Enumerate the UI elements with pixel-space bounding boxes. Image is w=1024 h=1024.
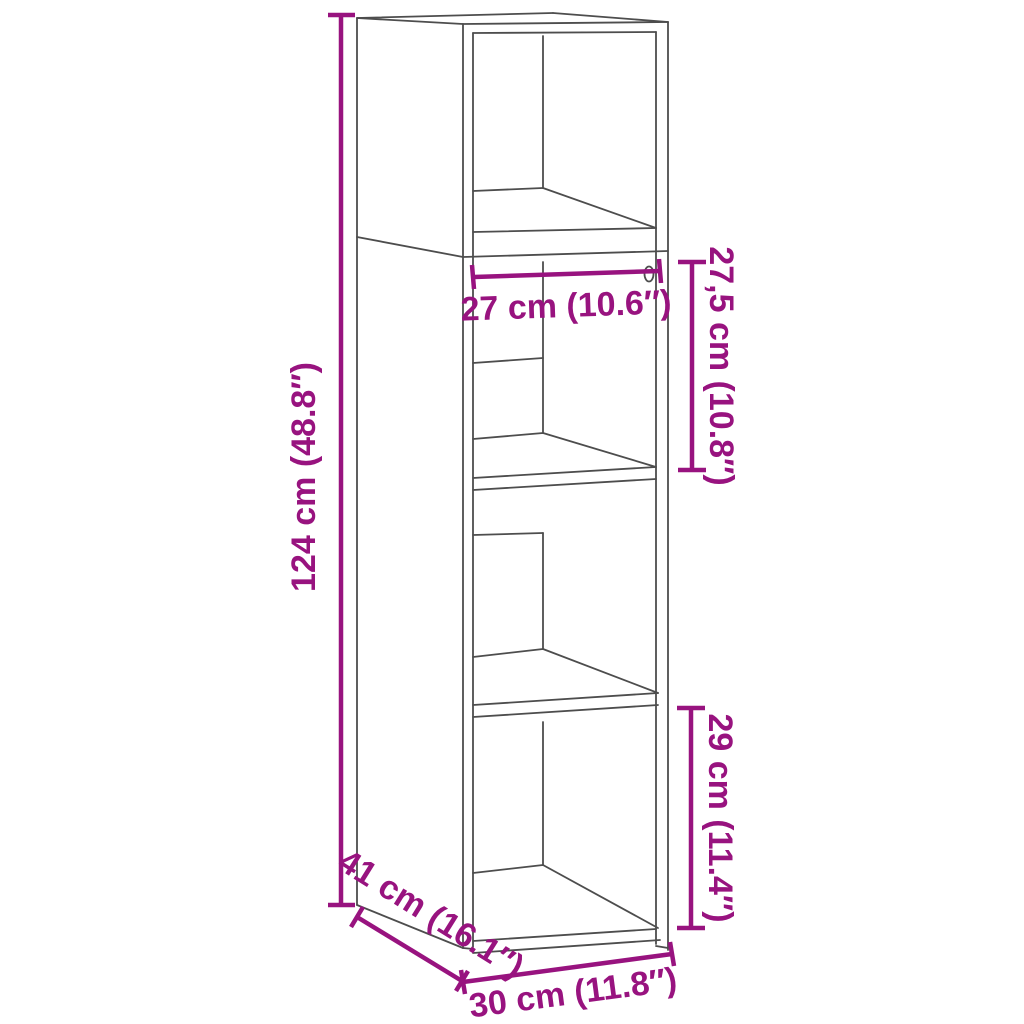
lower-shelf-height-dimension — [677, 708, 705, 928]
cabinet-edge-back-top — [357, 13, 553, 18]
shelf2-front-top-edge — [473, 467, 656, 478]
stile-right-bottom-cap — [656, 946, 668, 948]
upper-shelf-height-label: 27,5 cm (10.8″) — [702, 246, 740, 485]
lower-shelf-height-label: 29 cm (11.4″) — [701, 713, 739, 922]
shelf3-receding-edge — [543, 649, 658, 693]
comp2-back-seam — [473, 358, 543, 363]
cam-hole-icon — [645, 267, 654, 282]
total-height-label: 124 cm (48.8″) — [285, 362, 323, 592]
cabinet-edge-opening-top — [473, 32, 656, 33]
topbox-side-bottom-edge — [357, 237, 463, 257]
total-height-dimension — [328, 15, 355, 905]
diagram-canvas: 124 cm (48.8″) 27 cm (10.6″) 27,5 cm (10… — [0, 0, 1024, 1024]
upper-shelf-height-dimension — [678, 262, 706, 470]
dimension-lines — [328, 15, 706, 994]
shelf3-back-edge — [473, 649, 543, 657]
shelf3-front-bottom-edge — [473, 705, 658, 717]
dim-line — [474, 271, 660, 277]
floor-receding-edge — [543, 865, 658, 928]
dimension-labels: 124 cm (48.8″) 27 cm (10.6″) 27,5 cm (10… — [285, 246, 740, 1024]
shelf2-back-edge — [473, 433, 543, 439]
topbox-interior-bottom-front — [473, 228, 656, 232]
cabinet-line-art — [357, 13, 668, 953]
topbox-front-bottom-edge — [463, 251, 668, 257]
cabinet-edge-top-right-side — [553, 13, 668, 22]
cabinet-edge-front-top — [463, 22, 668, 24]
shelf2-front-bottom-edge — [473, 479, 656, 490]
shelf2-receding-edge — [543, 433, 656, 467]
comp3-back-seam — [473, 533, 543, 535]
topbox-back-bottom-edge — [473, 188, 543, 191]
dim-tick-right — [659, 259, 661, 283]
inner-width-label: 27 cm (10.6″) — [460, 283, 672, 328]
comp4-back-bottom-edge — [473, 865, 543, 873]
topbox-bottom-receding-edge — [543, 188, 656, 228]
shelf3-front-top-edge — [473, 693, 658, 705]
dim-tick-left — [472, 265, 474, 289]
cabinet-dimension-diagram: 124 cm (48.8″) 27 cm (10.6″) 27,5 cm (10… — [0, 0, 1024, 1024]
cabinet-edge-left-top — [357, 18, 463, 24]
